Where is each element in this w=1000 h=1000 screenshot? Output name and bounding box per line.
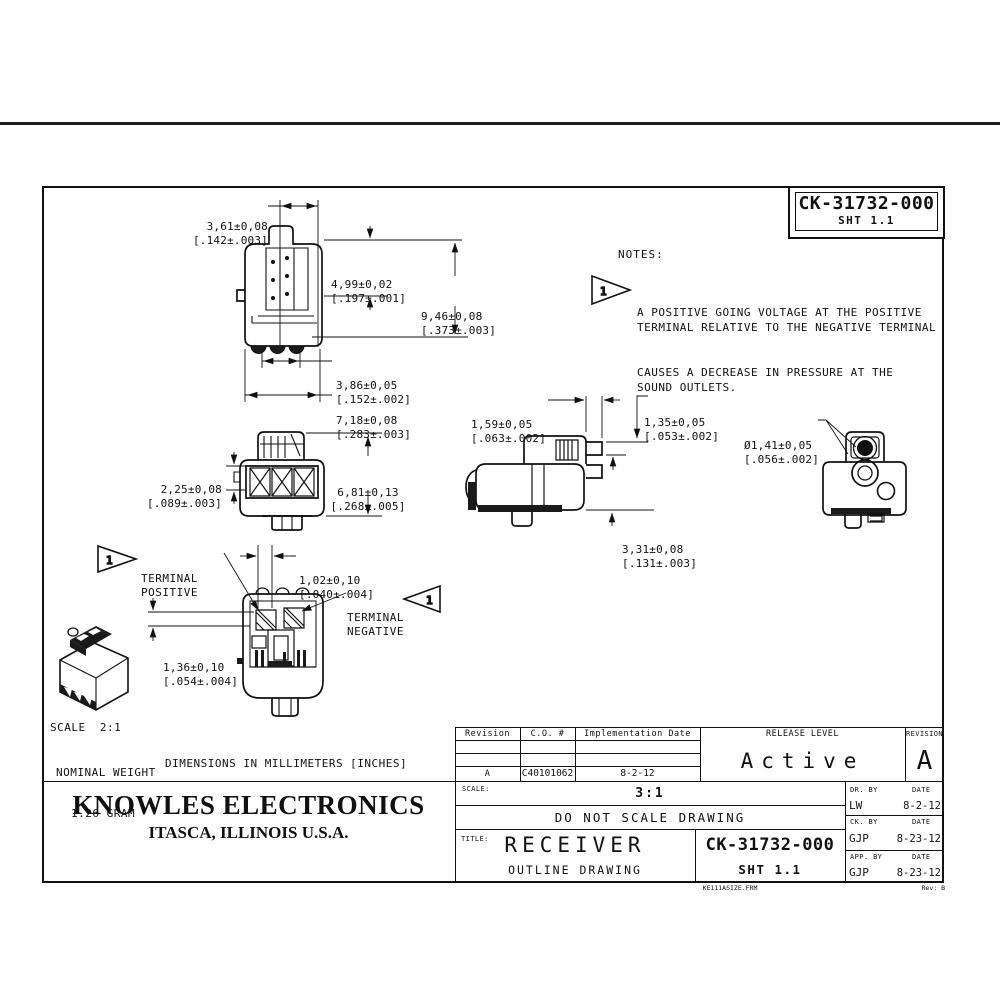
drawn-by-value: LW [849, 799, 862, 812]
units-note: DIMENSIONS IN MILLIMETERS [INCHES] [165, 757, 407, 771]
terminal-pads [256, 608, 304, 630]
drawing-title: RECEIVER [455, 831, 695, 859]
drawn-date-value: 8-2-12 [884, 800, 941, 812]
do-not-scale-note: DO NOT SCALE DRAWING [455, 805, 845, 829]
vent-stripes [556, 440, 578, 460]
implementation-date-col-header: Implementation Date [575, 727, 700, 740]
form-revision: Rev: B [905, 884, 945, 892]
dim-front-width: 7,18±0,08[.283±.003] [336, 387, 411, 468]
coil-x-pattern [250, 468, 314, 496]
terminal-negative-label: TERMINALNEGATIVE [347, 584, 404, 665]
release-level-label: RELEASE LEVEL [700, 727, 905, 740]
dim-side-offset: 1,59±0,05[.063±.002] [471, 391, 546, 472]
title-block-part-number: CK-31732-000 [695, 831, 845, 858]
co-number-col-header: C.O. # [520, 727, 575, 740]
back-view [234, 432, 324, 530]
svg-text:1: 1 [600, 285, 607, 298]
top-view [823, 432, 906, 528]
approved-by-label: APP. BY [850, 853, 882, 861]
drawn-date-label: DATE [912, 786, 930, 794]
revision-row-co-number: C40101062 [520, 766, 575, 781]
svg-text:1: 1 [426, 594, 433, 607]
dim-front-port-offset: 4,99±0,02[.197±.001] [331, 251, 406, 332]
company-name: KNOWLES ELECTRONICS [42, 790, 455, 821]
terminal-positive-label: TERMINALPOSITIVE [141, 545, 198, 626]
scale-value: 3:1 [455, 781, 845, 805]
checked-by-value: GJP [849, 832, 869, 845]
sound-outlet-hole [857, 440, 873, 456]
svg-text:1: 1 [106, 554, 113, 567]
revision-label: REVISION [905, 727, 944, 740]
notes-text: A POSITIVE GOING VOLTAGE AT THE POSITIVE… [637, 275, 936, 425]
dim-side-base: 3,31±0,08[.131±.003] [622, 516, 697, 597]
sound-outlet-scallops [251, 346, 304, 354]
checked-date-value: 8-23-12 [884, 833, 941, 845]
company-location: ITASCA, ILLINOIS U.S.A. [42, 823, 455, 843]
revision-col-header: Revision [455, 727, 520, 740]
checked-date-label: DATE [912, 818, 930, 826]
drawing-subtitle: OUTLINE DRAWING [455, 860, 695, 880]
checked-by-label: CK. BY [850, 818, 878, 826]
title-block-sheet: SHT 1.1 [695, 859, 845, 879]
dim-front-width-top: 3,61±0,08[.142±.003] [160, 193, 268, 274]
negative-flag-triangle: 1 [404, 586, 440, 612]
drawn-by-label: DR. BY [850, 786, 878, 794]
iso-scale-note: SCALE 2:1 [50, 721, 121, 735]
dim-back-height: 6,81±0,13[.268±.005] [325, 459, 411, 540]
dim-bottom-pad: 1,36±0,10[.054±.004] [163, 634, 238, 715]
positive-flag-triangle: 1 [98, 546, 136, 572]
approved-date-value: 8-23-12 [884, 867, 941, 879]
release-level-value: Active [700, 740, 905, 781]
form-file-reference: KE111ASIZE.FRM [660, 884, 800, 892]
approved-by-value: GJP [849, 866, 869, 879]
revision-value: A [905, 740, 944, 781]
revision-row-letter: A [455, 766, 520, 781]
revision-row-date: 8-2-12 [575, 766, 700, 781]
drawing-sheet: CK-31732-000 SHT 1.1 [0, 0, 1000, 1000]
iso-view [60, 626, 128, 710]
approved-date-label: DATE [912, 853, 930, 861]
note-flag-triangle: 1 [592, 276, 630, 304]
dim-back-band: 2,25±0,08[.089±.003] [114, 456, 222, 537]
notes-heading: NOTES: [618, 248, 664, 262]
dim-front-height: 9,46±0,08[.373±.003] [421, 283, 496, 364]
